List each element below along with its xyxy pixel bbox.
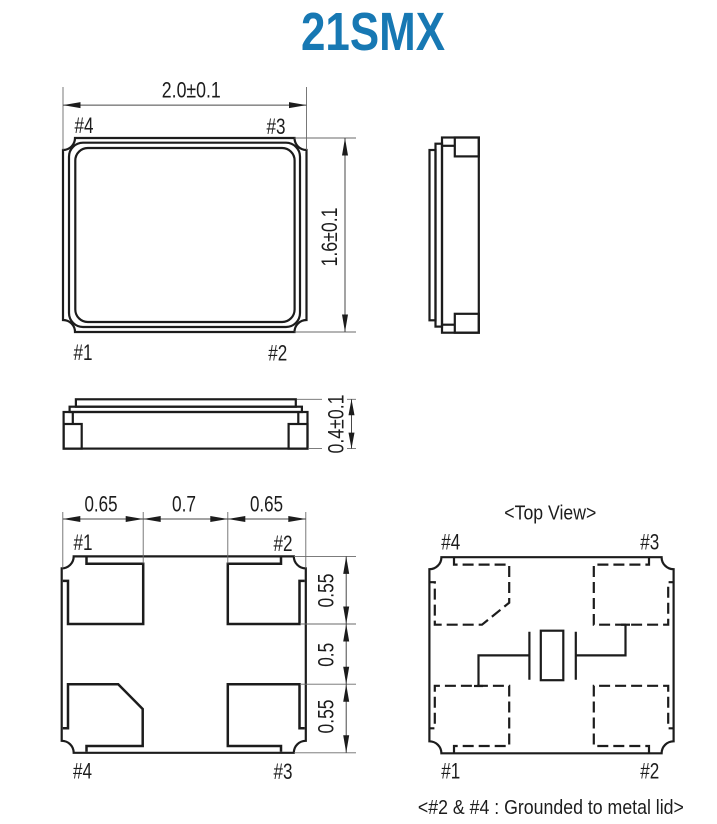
svg-text:1.6±0.1: 1.6±0.1 xyxy=(317,208,342,267)
svg-text:0.55: 0.55 xyxy=(314,574,339,608)
svg-text:#2: #2 xyxy=(640,759,659,784)
svg-text:2.0±0.1: 2.0±0.1 xyxy=(162,78,221,103)
svg-text:#1: #1 xyxy=(74,340,93,365)
svg-text:#4: #4 xyxy=(441,530,460,555)
svg-text:0.65: 0.65 xyxy=(85,492,118,517)
svg-text:0.7: 0.7 xyxy=(172,492,196,517)
svg-text:0.65: 0.65 xyxy=(250,492,283,517)
svg-text:#2: #2 xyxy=(268,341,287,366)
svg-text:0.5: 0.5 xyxy=(314,643,339,667)
svg-text:0.4±0.1: 0.4±0.1 xyxy=(324,395,349,454)
svg-text:#3: #3 xyxy=(640,530,659,555)
svg-text:<Top View>: <Top View> xyxy=(504,503,596,525)
svg-text:21SMX: 21SMX xyxy=(301,2,445,62)
svg-text:#3: #3 xyxy=(274,759,293,784)
svg-text:#4: #4 xyxy=(75,113,94,138)
svg-text:<#2 & #4 : Grounded to metal l: <#2 & #4 : Grounded to metal lid> xyxy=(418,796,684,819)
svg-text:0.55: 0.55 xyxy=(314,700,339,734)
svg-text:#3: #3 xyxy=(267,114,286,139)
svg-text:#4: #4 xyxy=(73,759,92,784)
svg-text:#2: #2 xyxy=(274,531,293,556)
svg-text:#1: #1 xyxy=(74,530,93,555)
svg-text:#1: #1 xyxy=(441,759,460,784)
